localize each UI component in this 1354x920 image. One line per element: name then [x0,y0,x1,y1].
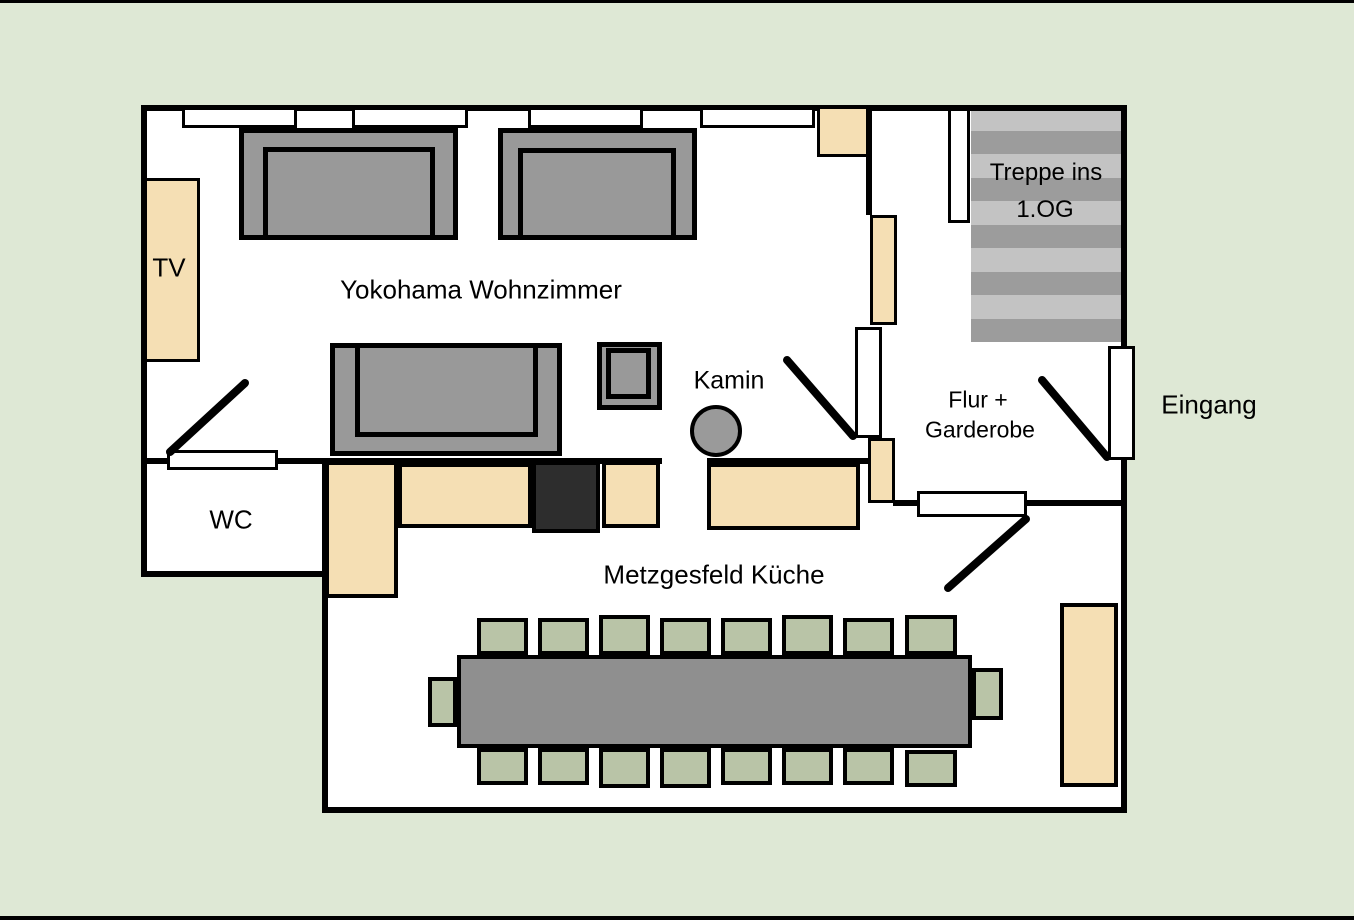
door-livingroom-hall [855,327,882,438]
stair-step [971,319,1123,343]
floor-plan: TV Yokohama Wohnzimmer Kamin WC Metzgesf… [0,0,1354,920]
stair-step [971,225,1123,249]
label-kamin: Kamin [694,367,765,396]
door-stairs-side [948,108,970,223]
chair [660,748,711,788]
sofa-seat [518,148,676,240]
wall-bottom [322,807,1127,813]
chair [660,618,711,655]
chair [721,748,772,785]
door-hall-kitchen [917,491,1027,517]
label-tv: TV [152,253,185,284]
chair [599,748,650,788]
top-border [0,0,1354,3]
label-flur-line1: Flur + [948,387,1007,414]
label-wohnzimmer: Yokohama Wohnzimmer [340,275,622,306]
kamin-fireplace [690,405,742,457]
chair [599,615,650,655]
window [352,107,468,128]
chair [538,618,589,655]
chair [721,618,772,655]
stair-step [971,295,1123,319]
sofa-seat [355,343,538,437]
kitchen-counter [707,463,860,530]
chair [782,748,833,785]
kitchen-counter [398,463,532,528]
window [700,107,815,128]
label-kueche: Metzgesfeld Küche [603,560,824,591]
chair-end-left [428,677,457,727]
stair-step [971,272,1123,296]
label-flur-line2: Garderobe [925,417,1035,444]
kitchen-counter-right [1060,603,1118,787]
label-treppe-line1: Treppe ins [990,159,1103,187]
stair-step [971,248,1123,272]
chair [905,750,957,787]
kitchen-counter-left [325,461,398,598]
label-treppe-line2: 1.OG [1016,196,1073,224]
chair [782,615,833,655]
armchair-seat [606,348,651,399]
door-wc [167,450,278,470]
window [182,107,297,128]
armchair [597,342,662,410]
wall-segment-tan-low [868,438,895,503]
kitchen-counter [602,461,660,528]
sofa-top-left [239,128,458,240]
dining-table [457,655,972,748]
stair-step [971,131,1123,155]
wall-kitchen-left [322,571,328,813]
chair-end-right [972,668,1003,720]
chair [477,748,528,785]
window [528,107,643,128]
stairs-treppe [971,107,1123,342]
chair [843,748,894,785]
wall-segment-tan-top [817,106,869,157]
door-entrance [1108,346,1135,460]
label-eingang: Eingang [1161,390,1256,421]
sofa-top-right [498,128,697,240]
wall-segment-tan-mid [870,215,897,325]
chair [905,615,957,655]
wall-wc-bottom [141,571,328,577]
chair [843,618,894,655]
label-wc: WC [209,505,252,536]
stove [532,461,600,533]
chair [477,618,528,655]
chair [538,748,589,785]
bottom-border [0,916,1354,920]
sofa-seat [263,147,435,240]
sofa-lower [330,343,562,456]
